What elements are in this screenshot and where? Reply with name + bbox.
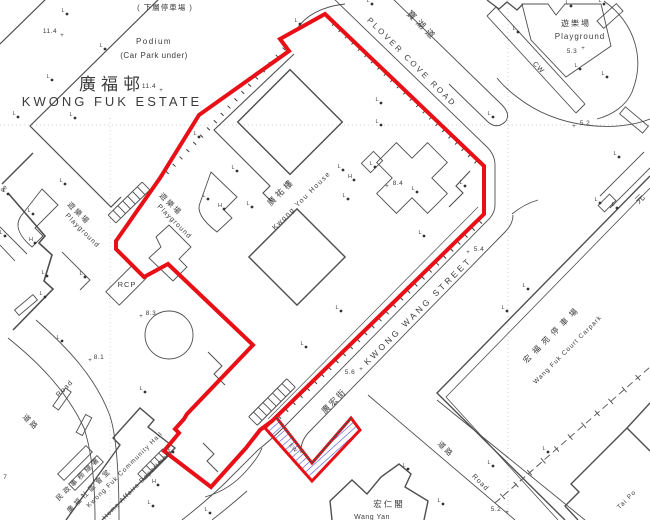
lamp-markers-dot-33: [579, 68, 582, 71]
lamp-markers-label-27: L: [300, 341, 303, 347]
spot-height-11-4-b-plus-mark: +: [159, 88, 163, 94]
hydrant-markers-label-1: H: [218, 203, 222, 209]
boundary-ticks-northwest-tick-124: [248, 84, 251, 87]
lamp-markers-dot-9: [32, 213, 35, 216]
lamp-markers-label-8: L: [59, 178, 62, 184]
stairs-estate-rung-1: [113, 210, 121, 218]
walkway-band-hatched: [265, 417, 360, 481]
boundary-ticks-kwongwang-tick-4: [479, 221, 482, 224]
label-wang-fuk-zh: 宏福苑停車場: [521, 303, 583, 365]
stairs-estate-rung-3: [123, 201, 131, 209]
spot-height-5-6-plus-mark: +: [359, 367, 363, 373]
label-tai-po: Tai Po: [616, 489, 638, 511]
lamp-markers-label-44: L: [437, 498, 440, 504]
covered-walkway-cap-a: [487, 7, 496, 16]
tai-po-building-east: [627, 428, 650, 451]
map-layer-root: ( 下層停車場 )Podium(Car Park under)廣福邨KWONG …: [0, 0, 650, 520]
lamp-markers-dot-34: [606, 76, 609, 79]
lamp-markers-label-15: L: [231, 165, 234, 171]
stairs-estate-rung-2: [118, 206, 126, 214]
lamp-markers-dot-38: [616, 207, 619, 210]
road-island-1: [15, 295, 38, 316]
boundary-ticks-northwest-tick-84: [221, 113, 224, 116]
stairs-estate-rung-6: [137, 187, 145, 195]
boundary-ticks-northwest-tick-34: [186, 149, 189, 152]
stairs-kwong-wang-rung-1: [254, 412, 262, 420]
spot-height-5-2-a-plus-mark: +: [572, 124, 576, 130]
lamp-markers-label-45: L: [204, 507, 207, 513]
lamp-markers-dot-8: [64, 183, 67, 186]
stairs-estate-rung-7: [142, 182, 150, 190]
lamp-markers-label-28: L: [335, 305, 338, 311]
lamp-markers-dot-14: [198, 136, 201, 139]
lamp-markers-label-11: L: [41, 270, 44, 276]
spot-height-11-4-a-plus-mark: +: [60, 33, 64, 39]
lamp-markers-label-43: L: [402, 463, 405, 469]
kwong-wang-junction-link: [512, 200, 538, 214]
lamp-markers-label-13: L: [79, 271, 82, 277]
spot-height-5-6: 5.6: [345, 369, 356, 376]
street-inner-line: [268, 207, 478, 419]
lamp-markers-label-2: L: [46, 74, 49, 80]
ne-road-arc-outer: [597, 1, 638, 119]
lamp-markers-dot-27: [305, 346, 308, 349]
lamp-markers-label-23: L: [369, 161, 372, 167]
lamp-markers-label-25: L: [459, 180, 462, 186]
label-rcp: RCP: [118, 280, 137, 289]
ne-small-rect-side: [620, 107, 649, 133]
boundary-ticks-northwest-tick-94: [228, 106, 231, 109]
lamp-markers-label-20: L: [337, 164, 340, 170]
left-road-pair-b: [0, 245, 15, 261]
lamp-markers-label-37: L: [594, 197, 597, 203]
lamp-markers-dot-21: [380, 102, 383, 105]
hydrant-markers-dot-3: [157, 484, 160, 487]
lamp-markers-dot-46: [144, 391, 147, 394]
label-wang-fuk-en: Wang Fuk Court Carpark: [532, 314, 603, 385]
lamp-markers-label-7: L: [2, 188, 5, 194]
lamp-markers-label-3: L: [69, 112, 72, 118]
survey-map-frame: ( 下層停車場 )Podium(Car Park under)廣福邨KWONG …: [0, 0, 650, 520]
label-playground-ne-zh: 遊樂場: [561, 18, 591, 28]
carpark-access-b: [610, 168, 650, 208]
spot-height-5-2-b: 5.2: [491, 506, 502, 513]
lamp-markers-label-0: L: [61, 8, 64, 14]
lamp-markers-label-6: L: [366, 0, 369, 4]
lamp-markers-label-26: L: [342, 193, 345, 199]
lamp-markers-dot-36: [618, 156, 621, 159]
stairs-kwong-wang-rung-4: [268, 398, 276, 406]
kwong-wang-bottom-curve: [205, 448, 262, 497]
lamp-markers-dot-2: [51, 79, 54, 82]
lamp-markers-label-16: L: [246, 201, 249, 207]
lamp-markers-dot-35: [492, 116, 495, 119]
label-estate-en: KWONG FUK ESTATE: [22, 94, 202, 109]
boundary-ticks-northwest-tick-54: [200, 135, 203, 138]
covered-walkway-cap-b: [576, 104, 585, 113]
lamp-markers-dot-31: [570, 5, 573, 8]
lamp-markers-dot-18: [172, 451, 175, 454]
tai-po-building: [565, 403, 650, 520]
lamp-markers-dot-11: [46, 275, 49, 278]
lamp-markers-label-40: L: [501, 305, 504, 311]
lamp-markers-label-30: L: [512, 26, 515, 32]
kwong-you-diamond-north: [238, 70, 343, 175]
stairs-kwong-wang-rung-5: [273, 393, 281, 401]
wang-fuk-carpark-inner: [446, 188, 650, 520]
spot-height-8-4-plus-mark: +: [385, 184, 389, 190]
boundary-ticks-northwest-tick-114: [241, 91, 244, 94]
lamp-markers-dot-43: [407, 468, 410, 471]
lamp-markers-dot-23: [374, 166, 377, 169]
lamp-markers-dot-32: [603, 3, 606, 6]
label-kwong-you-zh: 廣祐樓: [265, 176, 296, 207]
label-kwong-you-en: Kwong You House: [271, 170, 332, 231]
steps-near-vee: [203, 443, 218, 472]
spot-height-8-3-plus-mark: +: [139, 314, 143, 320]
playground-corner-west: [62, 252, 90, 290]
lamp-markers-label-39: L: [522, 283, 525, 289]
lamp-markers-dot-28: [340, 310, 343, 313]
boundary-ticks-northwest-tick-74: [214, 120, 217, 123]
lamp-markers-label-35: L: [487, 111, 490, 117]
lamp-markers-dot-45: [209, 512, 212, 515]
lamp-markers-dot-30: [517, 31, 520, 34]
lamp-markers-label-32: L: [598, 0, 601, 4]
lamp-markers-dot-39: [527, 288, 530, 291]
lamp-markers-label-14: L: [193, 131, 196, 137]
boundary-ticks-northwest-tick-104: [234, 98, 237, 101]
lamp-markers-label-18: L: [167, 446, 170, 452]
stairs-estate-rung-0: [108, 215, 116, 223]
boundary-ticks-northwest-tick-44: [193, 142, 196, 145]
lamp-markers-dot-47: [61, 340, 64, 343]
lamp-markers-label-4: L: [12, 111, 15, 117]
ne-road-arc-lower: [497, 78, 650, 126]
lamp-markers-label-46: L: [139, 386, 142, 392]
spot-height-5-2-a: 5.2: [580, 120, 591, 127]
lamp-markers-dot-1: [104, 48, 107, 51]
stairs-kwong-wang-rung-8: [287, 379, 295, 387]
playground-hook-west: [18, 189, 58, 247]
lamp-markers-dot-0: [66, 13, 69, 16]
label-plover-zh: 寶湖道: [405, 8, 440, 43]
lamp-markers-dot-10: [4, 235, 7, 238]
label-kwong-wang-en: KWONG WANG STREET: [362, 255, 474, 367]
hydrant-markers-label-0: H: [29, 237, 33, 243]
lamp-markers-dot-19: [152, 505, 155, 508]
lamp-markers-dot-44: [442, 503, 445, 506]
lamp-markers-dot-25: [464, 185, 467, 188]
hydrant-markers-label-2: H: [348, 174, 352, 180]
hydrant-markers-dot-0: [34, 242, 37, 245]
hydrant-markers-label-3: H: [152, 479, 156, 485]
lamp-markers-dot-20: [342, 169, 345, 172]
label-podium: Podium: [136, 37, 172, 46]
stairs-kwong-wang-rung-3: [263, 403, 271, 411]
left-upper-road-edge: [2, 153, 33, 184]
cross-block: [361, 127, 463, 229]
wang-yan-house-outline: [330, 464, 428, 520]
lamp-markers-label-41: L: [542, 446, 545, 452]
stairs-kwong-wang-rung-6: [277, 388, 285, 396]
label-lower-carpark: ( 下層停車場 ): [137, 2, 193, 12]
lamp-markers-dot-40: [506, 310, 509, 313]
corner-block-top-left: [0, 0, 49, 44]
lamp-markers-label-38: L: [611, 202, 614, 208]
lamp-markers-label-34: L: [601, 71, 604, 77]
lamp-markers-dot-4: [17, 116, 20, 119]
spot-height-8-4: 8.4: [393, 180, 404, 187]
bottom-mid-road-edge-2: [437, 400, 585, 520]
lamp-markers-dot-29: [423, 235, 426, 238]
spot-height-5-3: 5.3: [567, 48, 578, 55]
spot-height-5-4-plus-mark: +: [466, 250, 470, 256]
spot-height-11-4-b: 11.4: [142, 83, 156, 90]
lamp-markers-dot-17: [207, 198, 210, 201]
lamp-markers-label-31: L: [565, 0, 568, 6]
lamp-markers-label-21: L: [375, 97, 378, 103]
stairs-estate-rung-5: [132, 191, 140, 199]
stairs-kwong-wang-rung-2: [258, 407, 266, 415]
lamp-markers-label-1: L: [99, 43, 102, 49]
lamp-markers-label-5: L: [294, 18, 297, 24]
lamp-markers-label-10: L: [0, 230, 3, 236]
boundary-ticks-northwest-tick-24: [179, 157, 182, 160]
label-kwong-wang-zh: 廣宏街: [319, 386, 348, 415]
lamp-markers-dot-42: [492, 465, 495, 468]
ne-small-rect-top: [597, 4, 623, 29]
stairs-kwong-wang-rung-0: [249, 417, 257, 425]
label-wang-yan-en: Wang Yan: [354, 514, 390, 520]
label-seven-fragment: 7: [3, 474, 7, 481]
lamp-markers-label-22: L: [375, 119, 378, 125]
estate-map-canvas: ( 下層停車場 )Podium(Car Park under)廣福邨KWONG …: [0, 0, 650, 520]
lamp-markers-dot-26: [347, 198, 350, 201]
lamp-markers-label-36: L: [613, 151, 616, 157]
lamp-markers-label-19: L: [147, 500, 150, 506]
spot-height-11-4-a: 11.4: [43, 28, 57, 35]
stairs-kwong-wang-rung-7: [282, 384, 290, 392]
spot-height-8-1-plus-mark: +: [88, 358, 92, 364]
lamp-markers-label-12: L: [39, 291, 42, 297]
playground-hook-mid: [199, 172, 237, 232]
boundary-ticks-northwest-tick-14: [173, 164, 176, 167]
label-playground-ne-en: Playground: [555, 32, 605, 41]
label-estate-zh: 廣福邨: [79, 75, 145, 94]
lamp-markers-dot-16: [251, 206, 254, 209]
bottom-exit-curve: [212, 491, 247, 520]
spot-height-8-3: 8.3: [146, 310, 157, 317]
boundary-ticks-northwest-tick-64: [207, 127, 210, 130]
spot-height-5-2-b-plus-mark: +: [505, 510, 509, 516]
label-road-s-zh: 道路: [436, 439, 457, 460]
boundary-ticks-kwongwang-tick-14: [472, 228, 475, 231]
label-cw: CW: [531, 61, 545, 76]
spot-height-8-1: 8.1: [94, 354, 105, 361]
lamp-markers-dot-37: [599, 202, 602, 205]
lamp-markers-label-47: L: [56, 335, 59, 341]
lamp-markers-label-29: L: [418, 230, 421, 236]
lamp-markers-dot-5: [299, 23, 302, 26]
kwong-you-diamond-south: [249, 209, 345, 305]
lamp-markers-label-33: L: [574, 63, 577, 69]
hydrant-markers-dot-1: [223, 208, 226, 211]
lamp-markers-dot-15: [236, 170, 239, 173]
spot-height-5-3-plus-mark: +: [581, 46, 585, 52]
lamp-markers-dot-7: [7, 193, 10, 196]
label-carpark-under: (Car Park under): [120, 51, 188, 60]
lamp-markers-dot-6: [371, 3, 374, 6]
lamp-markers-dot-3: [74, 117, 77, 120]
spot-height-5-4: 5.4: [474, 246, 485, 253]
stairs-estate-rung-4: [128, 196, 136, 204]
lamp-markers-dot-24: [416, 191, 419, 194]
fountain-circle: [145, 311, 193, 359]
label-road-w-zh: 道路: [21, 412, 42, 433]
lamp-markers-label-9: L: [27, 208, 30, 214]
label-wang-yan-zh: 宏仁閣: [373, 499, 405, 509]
lamp-markers-label-42: L: [487, 460, 490, 466]
lamp-markers-label-17: L: [202, 193, 205, 199]
lamp-markers-dot-22: [380, 124, 383, 127]
lamp-markers-dot-13: [84, 276, 87, 279]
hydrant-markers-dot-2: [353, 179, 356, 182]
lamp-markers-dot-41: [547, 451, 550, 454]
lamp-markers-label-24: L: [411, 186, 414, 192]
boundary-steps-east: [449, 171, 470, 207]
ne-top-fragments: [487, 0, 523, 10]
steps-near-diagonal: [208, 352, 225, 385]
lamp-markers-dot-12: [44, 296, 47, 299]
